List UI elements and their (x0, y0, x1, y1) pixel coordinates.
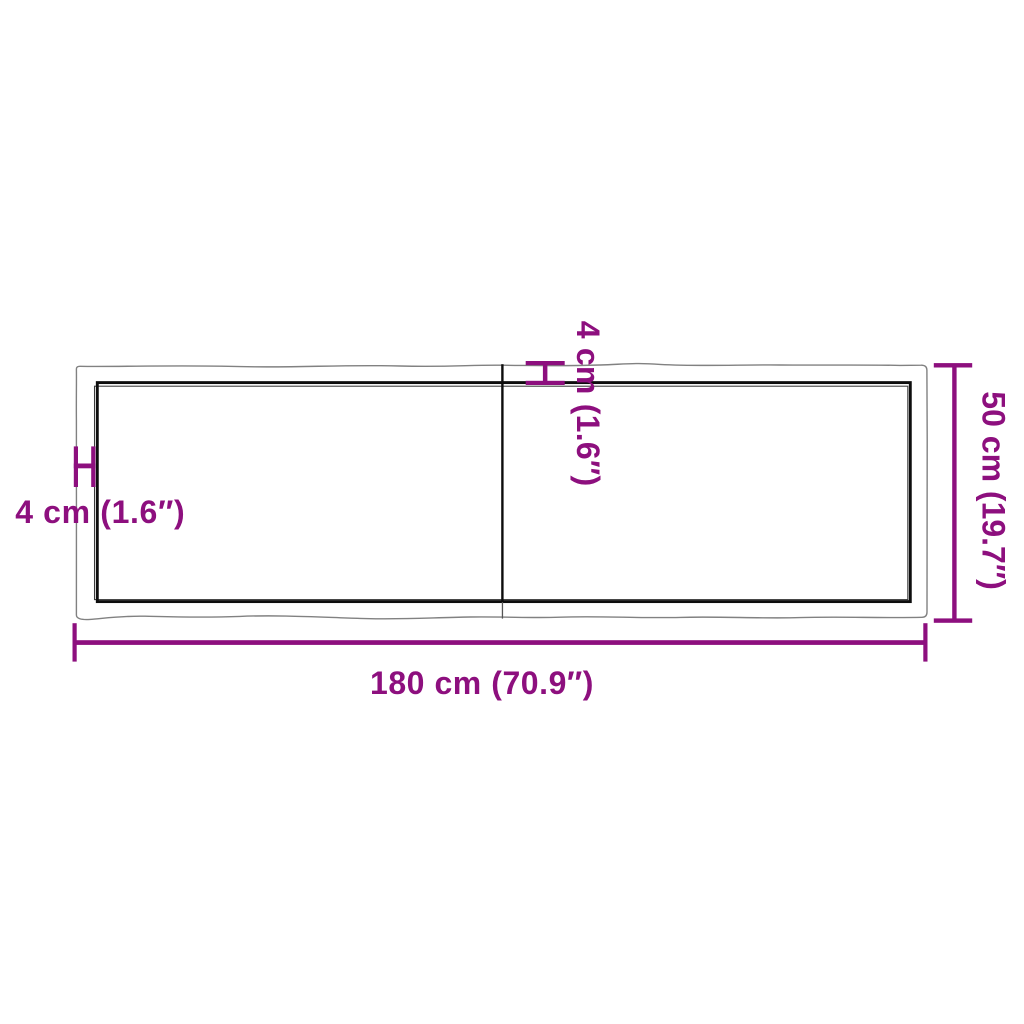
svg-text:50 cm (19.7″): 50 cm (19.7″) (976, 391, 1012, 590)
svg-text:180 cm (70.9″): 180 cm (70.9″) (370, 665, 594, 701)
svg-text:4 cm (1.6″): 4 cm (1.6″) (15, 494, 185, 530)
svg-text:4 cm (1.6″): 4 cm (1.6″) (570, 321, 606, 487)
